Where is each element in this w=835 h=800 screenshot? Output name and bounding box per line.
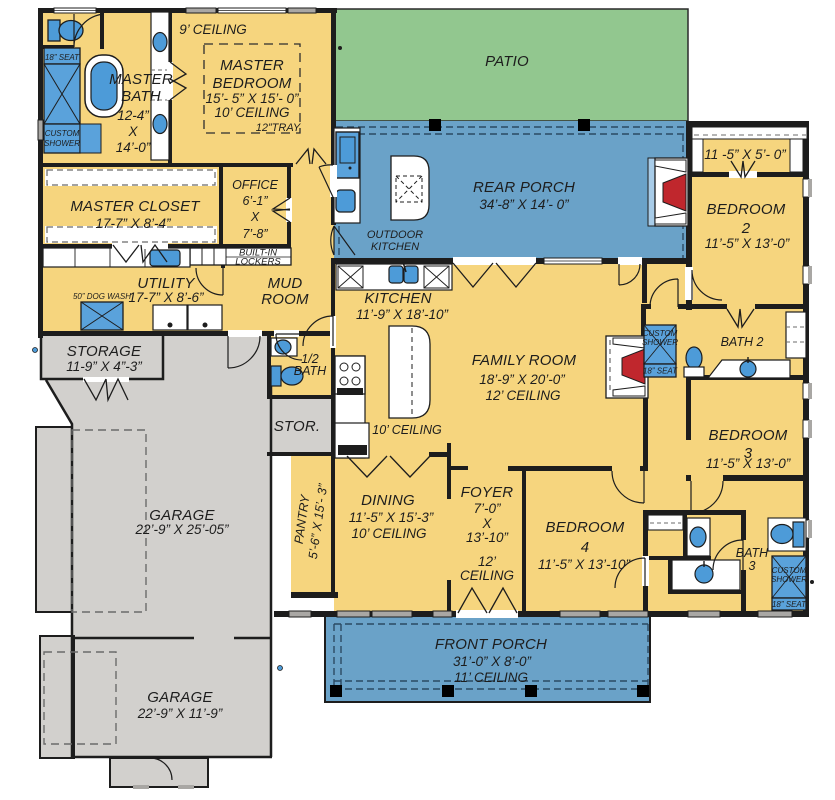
svg-text:BEDROOM: BEDROOM (707, 201, 786, 218)
svg-text:SHOWER: SHOWER (642, 338, 678, 347)
svg-text:CUSTOM: CUSTOM (45, 129, 80, 138)
svg-text:10’ CEILING: 10’ CEILING (214, 105, 289, 120)
svg-text:KITCHEN: KITCHEN (371, 241, 419, 253)
svg-text:BEDROOM: BEDROOM (213, 75, 292, 92)
svg-text:FOYER: FOYER (461, 484, 514, 501)
svg-text:CUSTOM: CUSTOM (772, 566, 807, 575)
svg-text:MASTER: MASTER (220, 57, 284, 74)
svg-text:12-4”: 12-4” (117, 108, 149, 123)
svg-text:15’- 5” X 15’- 0”: 15’- 5” X 15’- 0” (205, 91, 299, 106)
svg-text:REAR PORCH: REAR PORCH (473, 179, 575, 196)
svg-text:11’ CEILING: 11’ CEILING (454, 670, 528, 685)
svg-text:2: 2 (741, 220, 751, 237)
svg-text:X: X (250, 210, 260, 224)
svg-text:18” SEAT: 18” SEAT (45, 53, 80, 62)
svg-text:SHOWER: SHOWER (44, 139, 80, 148)
svg-text:BATH: BATH (121, 88, 161, 105)
svg-text:BATH 2: BATH 2 (721, 335, 764, 349)
svg-text:PATIO: PATIO (485, 53, 529, 70)
svg-text:OUTDOOR: OUTDOOR (367, 229, 423, 241)
svg-text:18” SEAT: 18” SEAT (772, 600, 807, 609)
svg-text:11 -5” X 5’- 0”: 11 -5” X 5’- 0” (704, 147, 786, 162)
svg-text:STORAGE: STORAGE (67, 343, 142, 360)
svg-text:11’-5” X 13’-0”: 11’-5” X 13’-0” (705, 236, 790, 251)
svg-text:7’-0”: 7’-0” (473, 501, 501, 516)
svg-text:9’ CEILING: 9’ CEILING (179, 22, 247, 37)
svg-text:BATH: BATH (294, 364, 327, 378)
svg-text:3: 3 (749, 559, 756, 573)
svg-text:MUD: MUD (268, 275, 303, 292)
svg-text:34’-8” X 14’- 0”: 34’-8” X 14’- 0” (479, 197, 569, 212)
svg-text:18’-9” X 20’-0”: 18’-9” X 20’-0” (479, 372, 565, 387)
svg-text:6’-1”: 6’-1” (242, 194, 268, 208)
svg-text:13’-10”: 13’-10” (466, 530, 509, 545)
svg-text:12”TRAY: 12”TRAY (256, 122, 301, 134)
svg-text:MASTER CLOSET: MASTER CLOSET (70, 198, 201, 215)
svg-text:STOR.: STOR. (274, 418, 321, 435)
svg-text:11-9” X 4”-3”: 11-9” X 4”-3” (66, 359, 142, 374)
svg-text:4: 4 (581, 539, 590, 556)
svg-text:FRONT PORCH: FRONT PORCH (435, 636, 547, 653)
svg-text:22’-9” X 25’-05”: 22’-9” X 25’-05” (134, 522, 229, 537)
svg-text:X: X (127, 124, 138, 139)
svg-text:CUSTOM: CUSTOM (643, 329, 678, 338)
svg-text:17-7” X 8’-6”: 17-7” X 8’-6” (128, 290, 204, 305)
svg-text:CEILING: CEILING (460, 568, 514, 583)
svg-text:DINING: DINING (361, 492, 415, 509)
svg-text:X: X (481, 516, 492, 531)
svg-text:17-7” X 8’-4”: 17-7” X 8’-4” (95, 216, 171, 231)
svg-text:12’ CEILING: 12’ CEILING (485, 388, 560, 403)
svg-text:10’ CEILING: 10’ CEILING (372, 423, 442, 437)
svg-text:FAMILY ROOM: FAMILY ROOM (472, 352, 577, 369)
svg-text:KITCHEN: KITCHEN (364, 290, 431, 307)
svg-text:11’-9” X 18’-10”: 11’-9” X 18’-10” (356, 307, 449, 322)
svg-text:BEDROOM: BEDROOM (709, 427, 788, 444)
svg-text:LOCKERS: LOCKERS (235, 257, 281, 268)
svg-text:BATH: BATH (736, 546, 769, 560)
svg-text:50” DOG WASH: 50” DOG WASH (73, 292, 131, 301)
svg-text:OFFICE: OFFICE (232, 178, 278, 192)
svg-text:SHOWER: SHOWER (771, 575, 807, 584)
svg-text:BEDROOM: BEDROOM (546, 519, 625, 536)
svg-text:11’-5” X 13’-10”: 11’-5” X 13’-10” (538, 557, 631, 572)
svg-text:18” SEAT: 18” SEAT (643, 367, 678, 376)
svg-text:22’-9” X 11’-9”: 22’-9” X 11’-9” (137, 706, 223, 721)
svg-text:31’-0” X 8’-0”: 31’-0” X 8’-0” (453, 654, 532, 669)
svg-text:GARAGE: GARAGE (147, 689, 213, 706)
svg-text:10’ CEILING: 10’ CEILING (351, 526, 426, 541)
svg-text:ROOM: ROOM (261, 291, 309, 308)
svg-text:11’-5” X 13’-0”: 11’-5” X 13’-0” (706, 456, 791, 471)
svg-text:MASTER: MASTER (109, 71, 173, 88)
svg-text:7’-8”: 7’-8” (242, 227, 268, 241)
svg-text:14’-0”: 14’-0” (116, 140, 151, 155)
svg-text:11’-5” X 15’-3”: 11’-5” X 15’-3” (349, 510, 434, 525)
svg-text:12’: 12’ (478, 554, 497, 569)
